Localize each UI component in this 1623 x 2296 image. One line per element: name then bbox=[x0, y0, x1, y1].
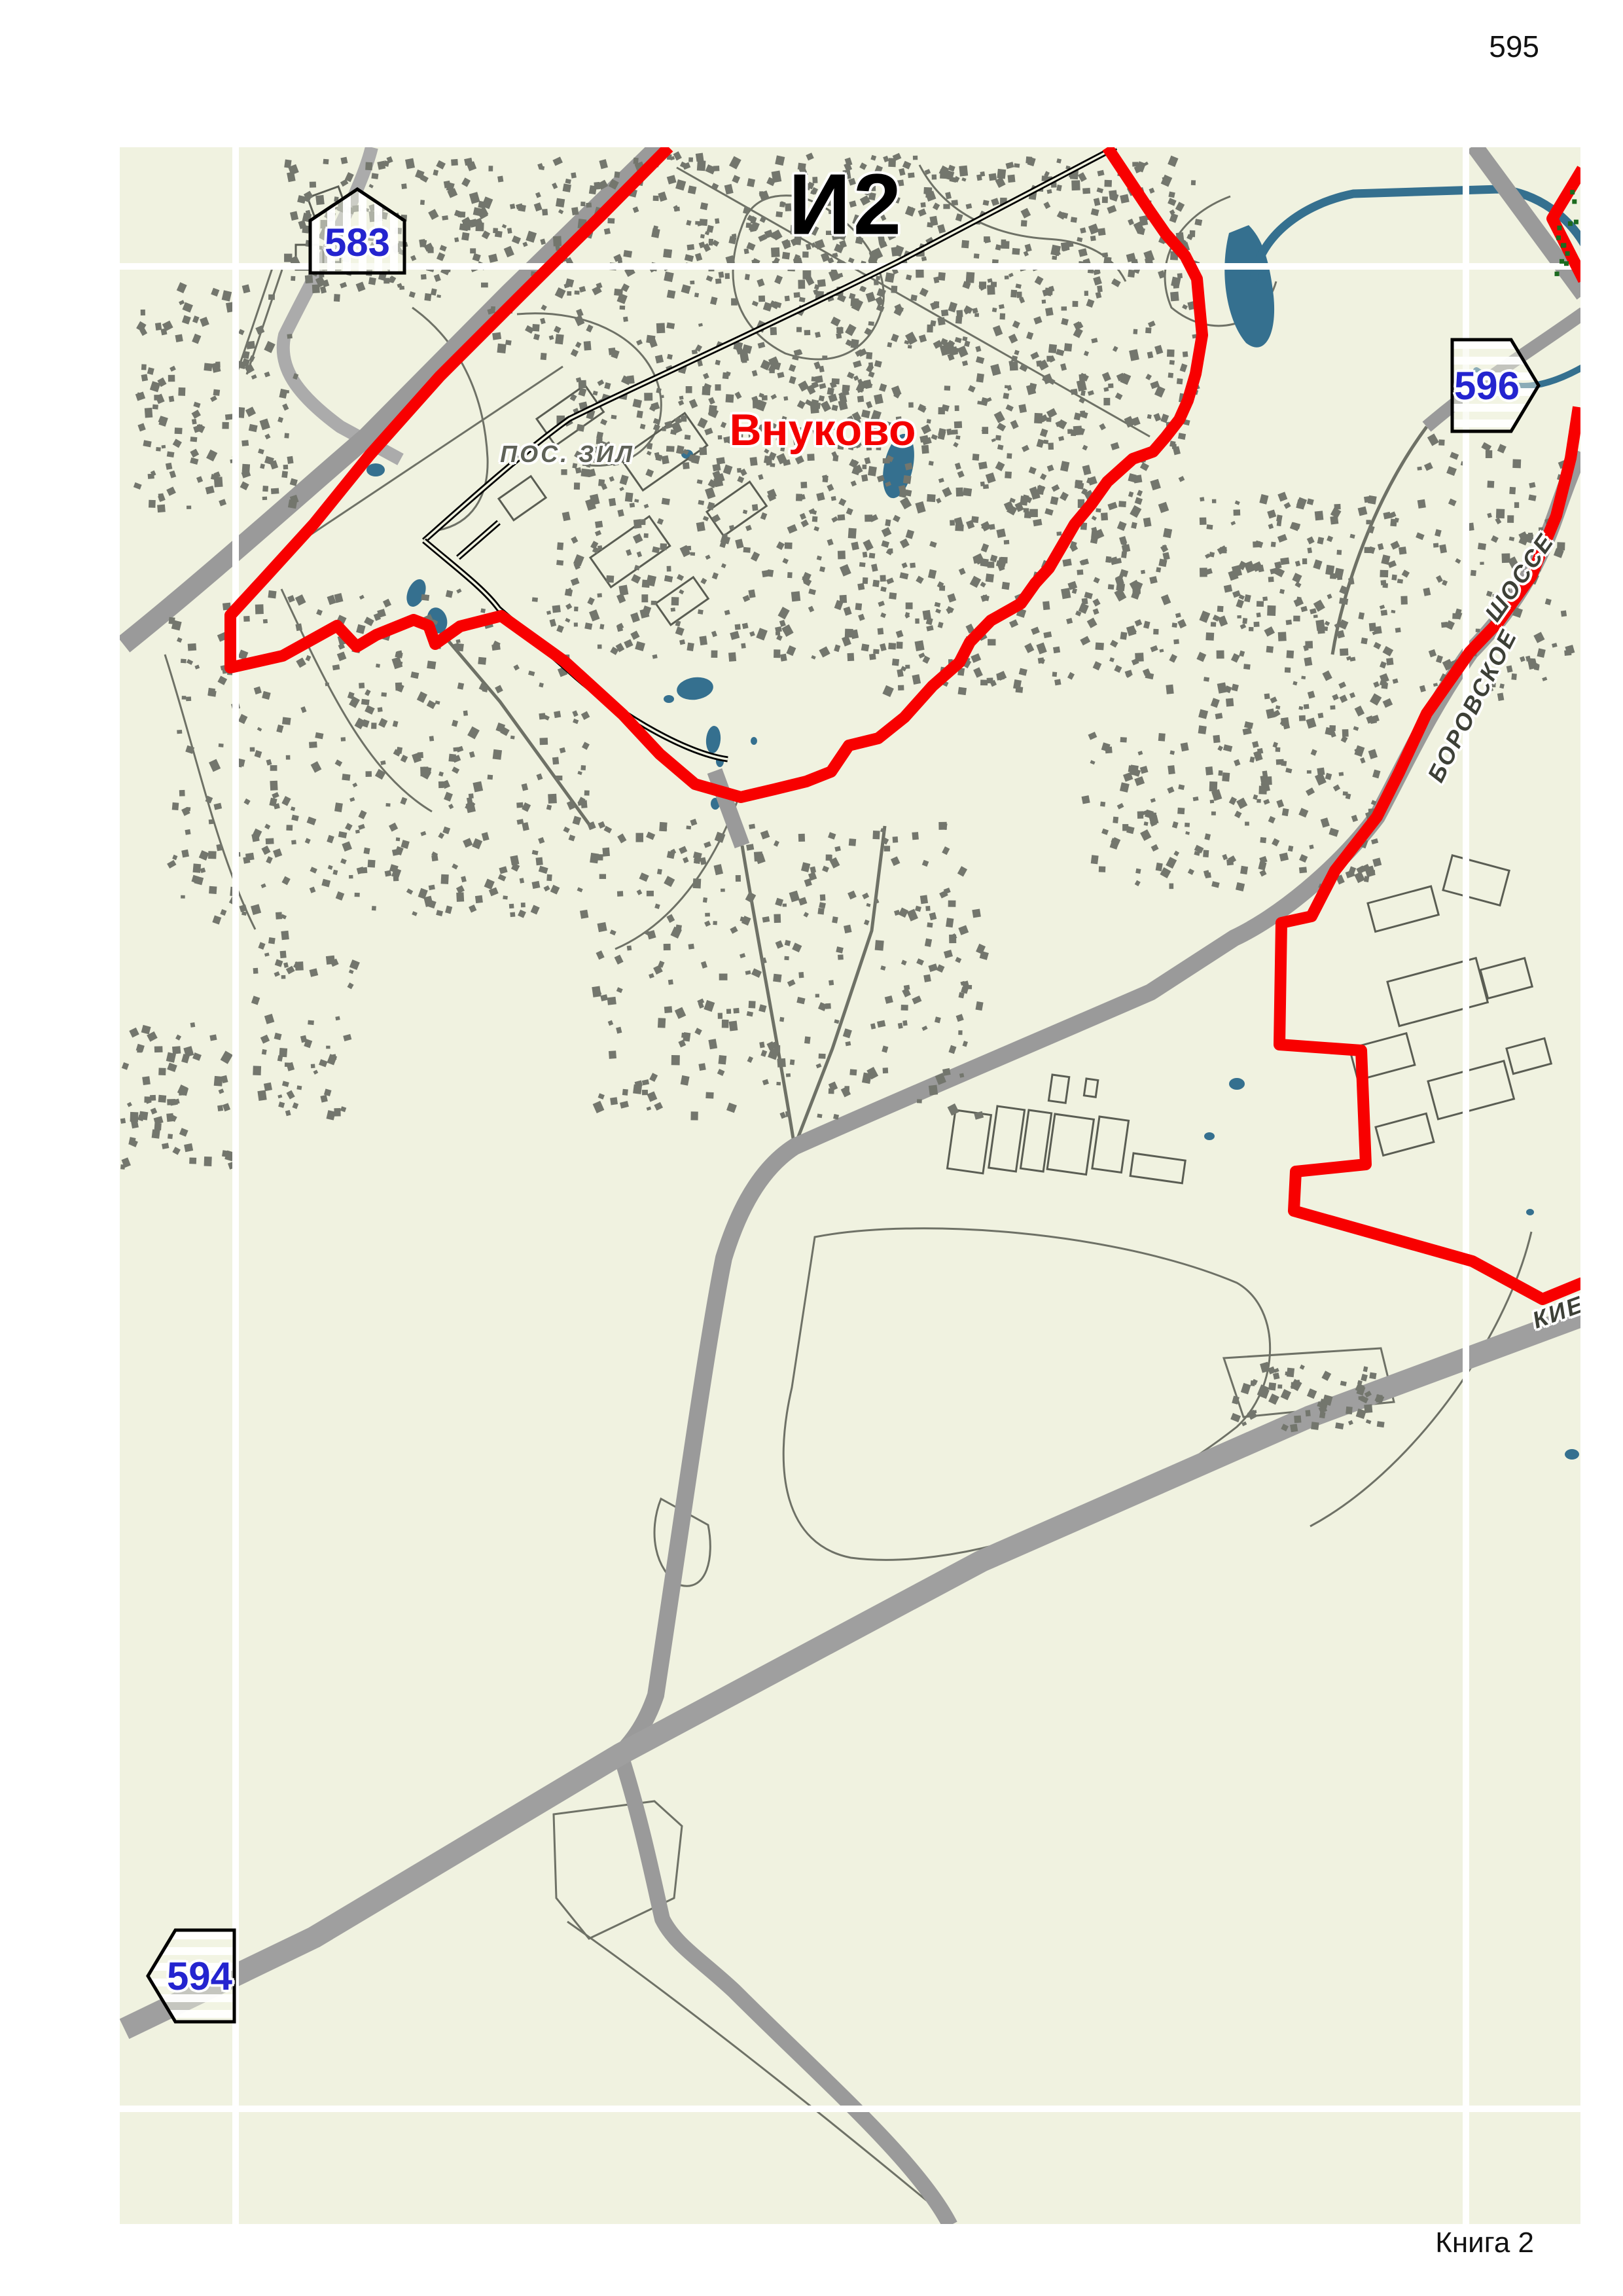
sheet-marker-596-number: 596 bbox=[1450, 337, 1541, 434]
book-label: Книга 2 bbox=[1435, 2227, 1534, 2259]
map-area: И2 Внуково ПОС. ЗИЛ БОРОВСКОЕ ШОССЕ КИЕВ… bbox=[120, 147, 1580, 2224]
map-canvas bbox=[120, 147, 1580, 2224]
sheet-marker-594-number: 594 bbox=[145, 1928, 237, 2024]
page-number: 595 bbox=[1489, 29, 1539, 64]
atlas-page: { "page": { "number": "595", "book": "Кн… bbox=[0, 0, 1623, 2296]
sheet-marker-594[interactable]: 594 bbox=[145, 1928, 237, 2024]
town-label-vnukovo: Внуково bbox=[729, 404, 916, 456]
settlement-label-pos-zil: ПОС. ЗИЛ bbox=[500, 440, 635, 468]
district-code-label: И2 bbox=[789, 155, 904, 254]
sheet-marker-583-number: 583 bbox=[308, 187, 407, 276]
sheet-marker-596[interactable]: 596 bbox=[1450, 337, 1541, 434]
sheet-marker-583[interactable]: 583 bbox=[308, 187, 407, 276]
